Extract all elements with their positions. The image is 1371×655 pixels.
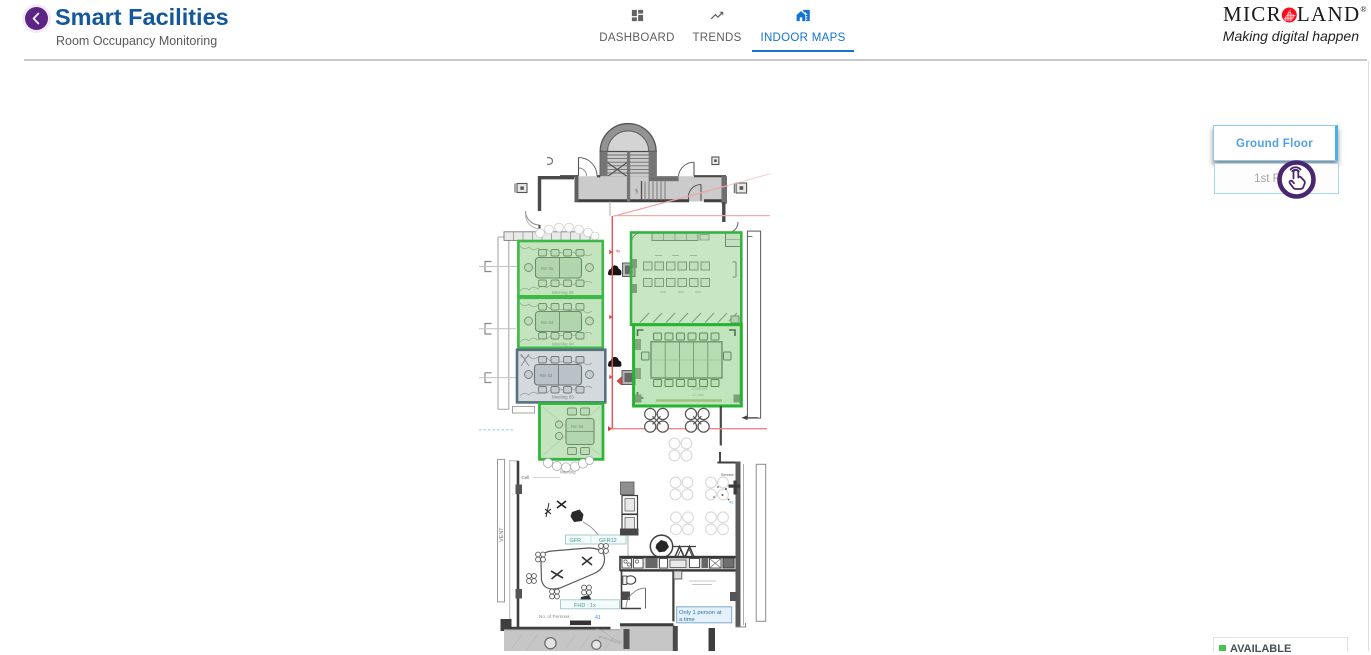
svg-text:No. of Persons :: No. of Persons : bbox=[539, 614, 572, 619]
svg-text:Meeting: Meeting bbox=[560, 470, 576, 475]
svg-text:GFR12: GFR12 bbox=[599, 538, 617, 544]
svg-text:GFR: GFR bbox=[570, 538, 582, 544]
svg-text:VENT: VENT bbox=[499, 527, 505, 542]
svg-text:42: 42 bbox=[729, 500, 734, 505]
svg-text:UP: UP bbox=[635, 188, 639, 194]
svg-text:41: 41 bbox=[595, 615, 601, 621]
svg-text:4x: 4x bbox=[616, 249, 622, 254]
svg-text:a time: a time bbox=[679, 617, 695, 623]
svg-text:Only 1 person at: Only 1 person at bbox=[679, 610, 722, 616]
svg-text:Cell: Cell bbox=[522, 475, 530, 480]
svg-text:FHD : 1x: FHD : 1x bbox=[574, 603, 596, 609]
svg-text:Service: Service bbox=[721, 473, 734, 477]
